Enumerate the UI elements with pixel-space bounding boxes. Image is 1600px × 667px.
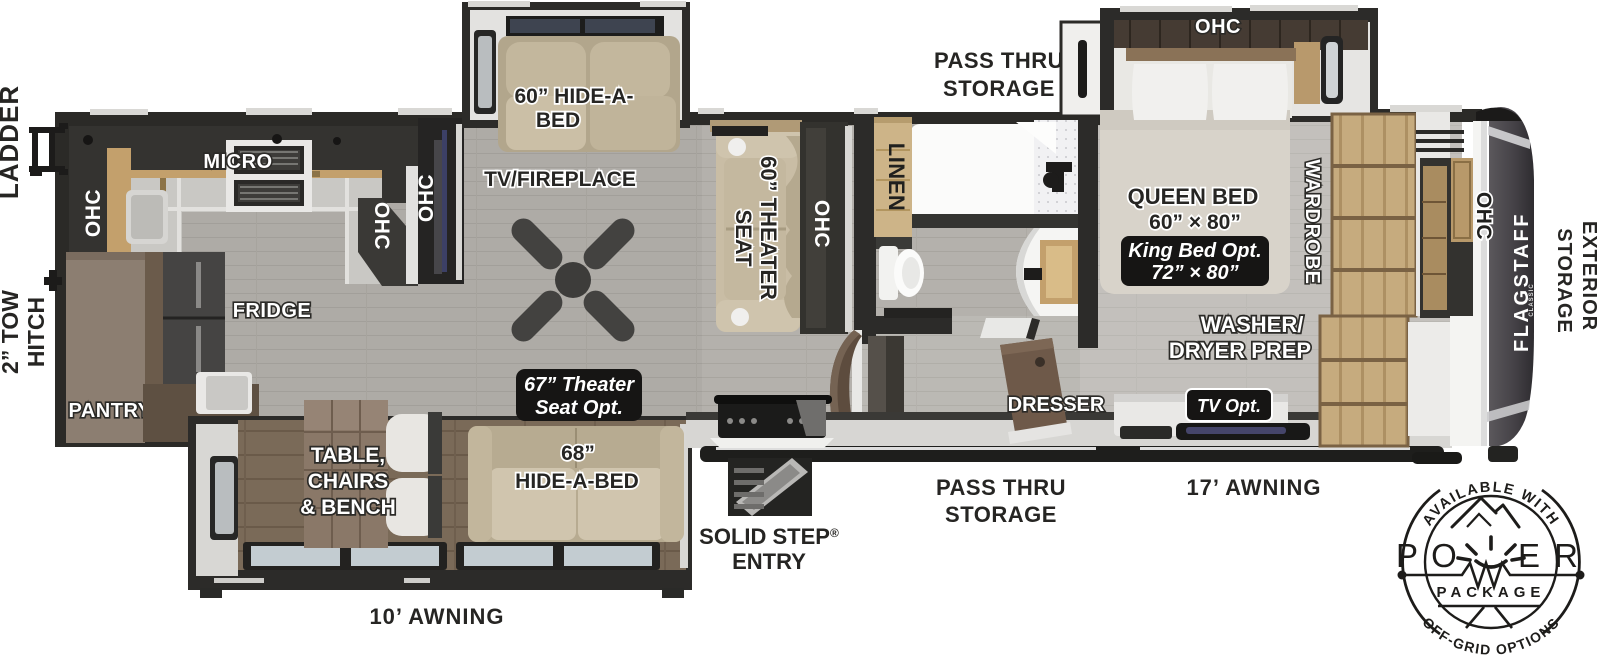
- svg-text:Seat Opt.: Seat Opt.: [535, 397, 623, 419]
- svg-text:68”: 68”: [561, 442, 595, 465]
- svg-text:FRIDGE: FRIDGE: [233, 300, 312, 322]
- svg-text:60” THEATER: 60” THEATER: [756, 156, 781, 300]
- svg-text:O: O: [1431, 537, 1457, 574]
- svg-text:2” TOW: 2” TOW: [0, 290, 23, 374]
- svg-text:WARDROBE: WARDROBE: [1301, 159, 1323, 284]
- svg-text:King Bed Opt.: King Bed Opt.: [1128, 240, 1261, 262]
- svg-text:OHC: OHC: [1472, 192, 1495, 240]
- svg-text:17’ AWNING: 17’ AWNING: [1186, 475, 1321, 500]
- svg-text:60” × 80”: 60” × 80”: [1149, 211, 1241, 234]
- svg-text:MICRO: MICRO: [203, 151, 272, 173]
- svg-text:60” HIDE-A-: 60” HIDE-A-: [514, 85, 633, 108]
- svg-text:STORAGE: STORAGE: [943, 76, 1055, 101]
- svg-text:& BENCH: & BENCH: [300, 496, 396, 519]
- svg-text:TABLE,: TABLE,: [311, 444, 385, 467]
- svg-text:TV Opt.: TV Opt.: [1197, 396, 1261, 416]
- svg-text:ENTRY: ENTRY: [732, 549, 806, 574]
- svg-text:STORAGE: STORAGE: [945, 502, 1057, 527]
- svg-text:PASS THRU: PASS THRU: [934, 48, 1064, 73]
- svg-text:CHAIRS: CHAIRS: [308, 470, 389, 493]
- svg-text:P: P: [1396, 537, 1418, 574]
- svg-text:OHC: OHC: [82, 189, 105, 237]
- svg-text:OHC: OHC: [1195, 16, 1241, 38]
- svg-text:WASHER/: WASHER/: [1201, 312, 1304, 337]
- svg-text:OHC: OHC: [810, 200, 833, 248]
- svg-text:HIDE-A-BED: HIDE-A-BED: [515, 470, 639, 493]
- svg-text:SOLID STEP®: SOLID STEP®: [699, 524, 839, 549]
- svg-text:72” × 80”: 72” × 80”: [1151, 262, 1238, 284]
- svg-text:HITCH: HITCH: [23, 297, 49, 367]
- svg-text:LINEN: LINEN: [884, 143, 909, 212]
- svg-text:10’ AWNING: 10’ AWNING: [369, 604, 504, 629]
- svg-text:EXTERIOR: EXTERIOR: [1578, 221, 1600, 331]
- svg-text:R: R: [1554, 537, 1578, 574]
- svg-text:PACKAGE: PACKAGE: [1437, 584, 1546, 601]
- svg-text:CLASSIC: CLASSIC: [1529, 283, 1535, 316]
- svg-text:DRYER PREP: DRYER PREP: [1169, 338, 1311, 363]
- svg-text:LADDER: LADDER: [0, 85, 24, 199]
- svg-text:STORAGE: STORAGE: [1553, 228, 1575, 334]
- svg-text:FLAGSTAFF: FLAGSTAFF: [1511, 212, 1533, 352]
- svg-text:QUEEN BED: QUEEN BED: [1128, 184, 1259, 209]
- svg-text:PANTRY: PANTRY: [69, 400, 152, 422]
- svg-text:67” Theater: 67” Theater: [524, 374, 635, 396]
- svg-text:E: E: [1518, 537, 1540, 574]
- svg-text:DRESSER: DRESSER: [1008, 394, 1105, 416]
- svg-text:OHC: OHC: [370, 202, 393, 250]
- svg-text:SEAT: SEAT: [731, 209, 756, 267]
- svg-text:OHC: OHC: [415, 174, 438, 222]
- svg-text:PASS THRU: PASS THRU: [936, 475, 1066, 500]
- svg-text:TV/FIREPLACE: TV/FIREPLACE: [484, 168, 636, 191]
- svg-text:BED: BED: [536, 109, 580, 132]
